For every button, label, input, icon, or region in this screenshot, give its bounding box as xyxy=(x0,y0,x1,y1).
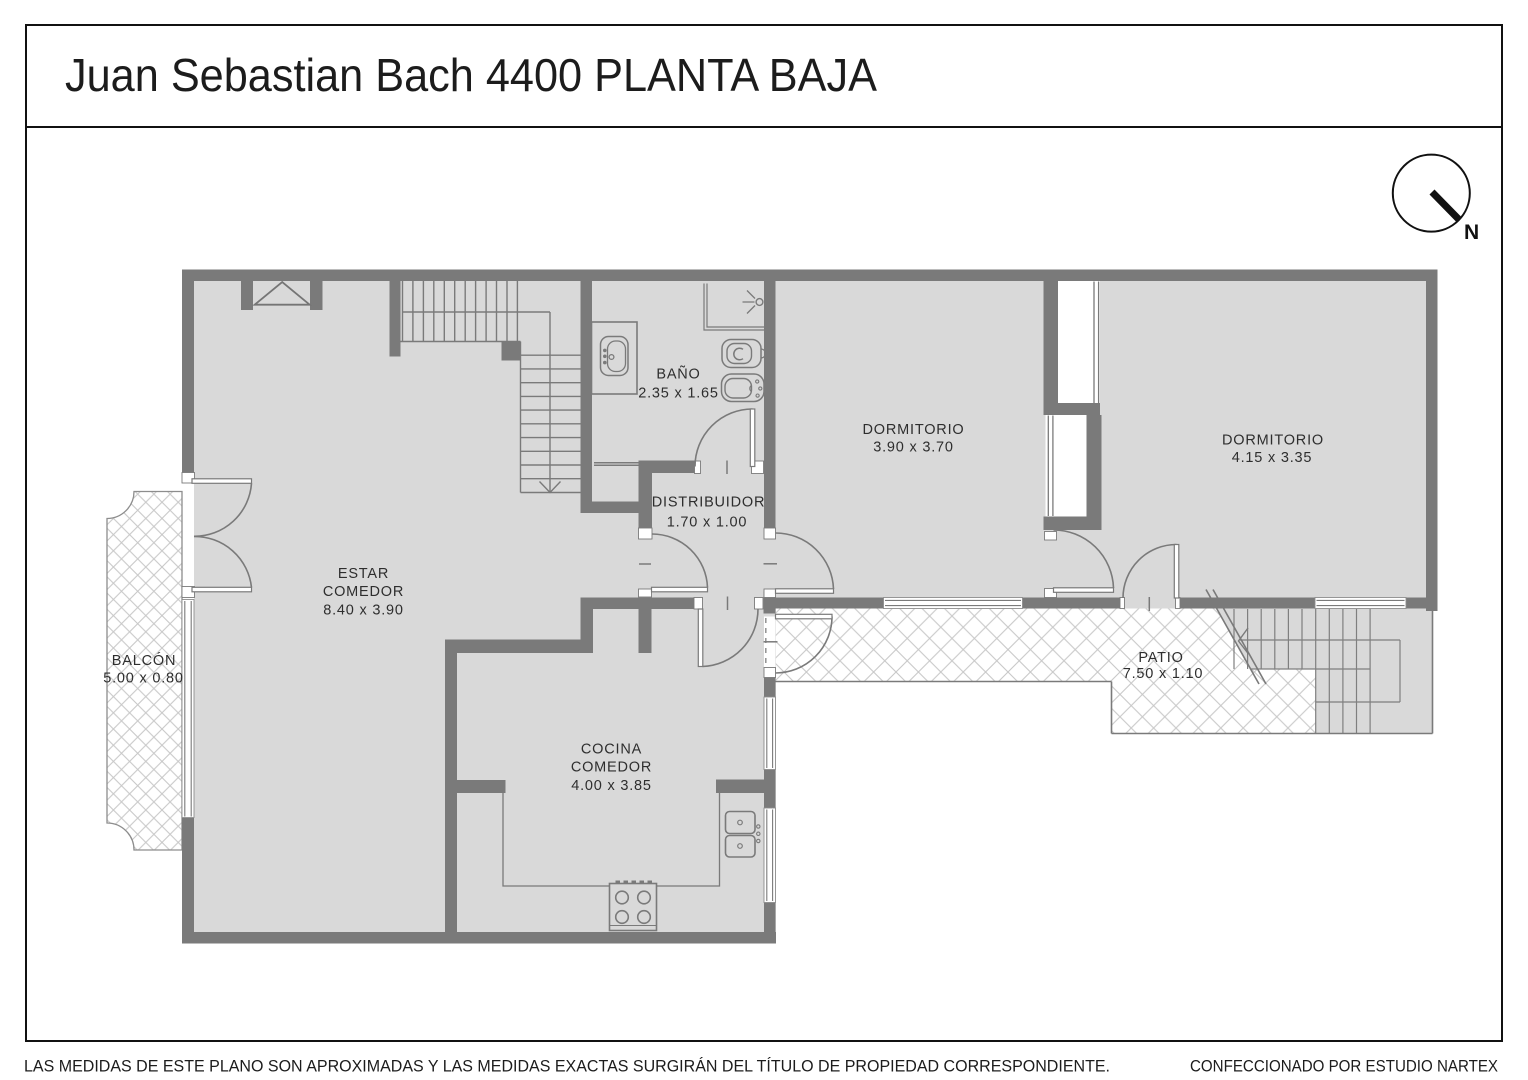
svg-text:PATIO: PATIO xyxy=(1138,650,1183,666)
svg-text:DORMITORIO: DORMITORIO xyxy=(863,422,965,438)
svg-text:5.00 x 0.80: 5.00 x 0.80 xyxy=(103,671,184,687)
svg-text:DISTRIBUIDOR: DISTRIBUIDOR xyxy=(652,495,766,511)
svg-text:LAS MEDIDAS DE ESTE PLANO SON: LAS MEDIDAS DE ESTE PLANO SON APROXIMADA… xyxy=(24,1057,1110,1076)
svg-text:N: N xyxy=(1464,221,1479,244)
svg-text:DORMITORIO: DORMITORIO xyxy=(1222,433,1324,449)
svg-text:3.90 x 3.70: 3.90 x 3.70 xyxy=(873,440,954,456)
svg-text:Juan Sebastian Bach 4400 PLANT: Juan Sebastian Bach 4400 PLANTA BAJA xyxy=(65,49,877,101)
svg-text:7.50 x 1.10: 7.50 x 1.10 xyxy=(1123,666,1204,682)
svg-text:COMEDOR: COMEDOR xyxy=(323,584,404,600)
svg-text:4.00 x 3.85: 4.00 x 3.85 xyxy=(571,778,652,794)
svg-text:CONFECCIONADO POR ESTUDIO NART: CONFECCIONADO POR ESTUDIO NARTEX xyxy=(1190,1058,1498,1076)
svg-text:1.70 x 1.00: 1.70 x 1.00 xyxy=(667,515,748,531)
svg-text:COMEDOR: COMEDOR xyxy=(571,760,652,776)
svg-text:COCINA: COCINA xyxy=(581,742,642,758)
svg-text:ESTAR: ESTAR xyxy=(338,566,389,582)
svg-text:4.15 x 3.35: 4.15 x 3.35 xyxy=(1232,450,1313,466)
svg-text:8.40 x 3.90: 8.40 x 3.90 xyxy=(323,603,404,619)
svg-text:2.35 x 1.65: 2.35 x 1.65 xyxy=(638,386,719,402)
svg-text:BAÑO: BAÑO xyxy=(656,366,700,383)
svg-text:BALCÓN: BALCÓN xyxy=(112,652,176,669)
